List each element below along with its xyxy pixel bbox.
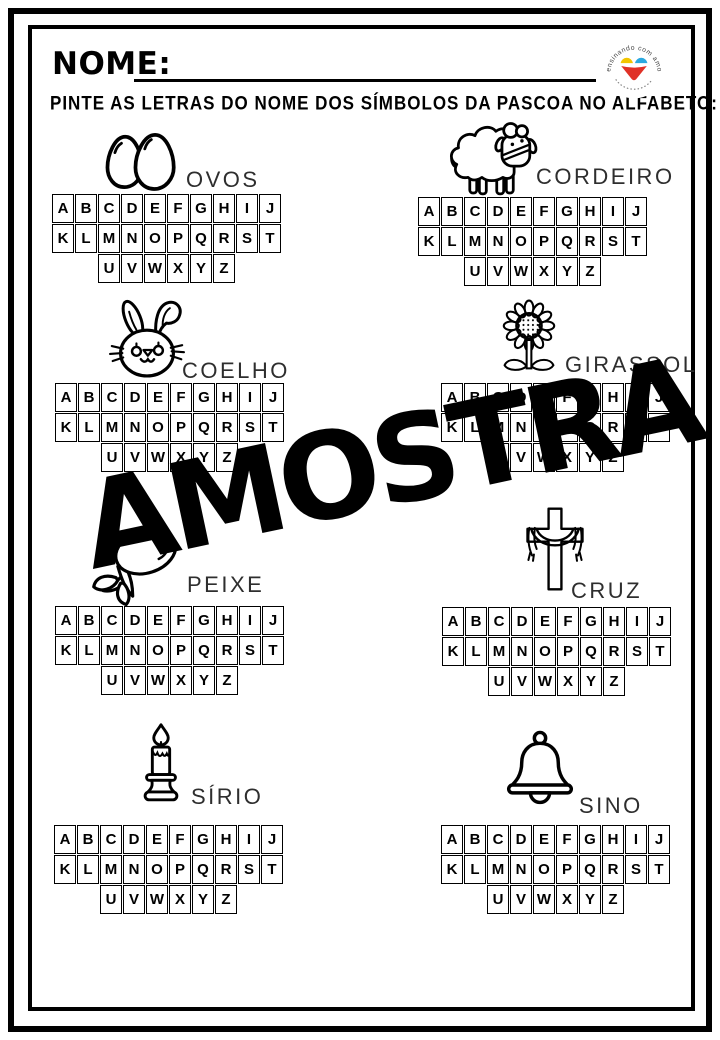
letter-cell-E[interactable]: E <box>534 607 556 636</box>
letter-cell-L[interactable]: L <box>465 637 487 666</box>
letter-cell-M[interactable]: M <box>101 413 123 442</box>
letter-cell-N[interactable]: N <box>124 636 146 665</box>
letter-cell-A[interactable]: A <box>418 197 440 226</box>
letter-cell-C[interactable]: C <box>464 197 486 226</box>
letter-cell-Q[interactable]: Q <box>556 227 578 256</box>
letter-cell-I[interactable]: I <box>625 825 647 854</box>
letter-cell-H[interactable]: H <box>602 825 624 854</box>
letter-cell-U[interactable]: U <box>98 254 120 283</box>
letter-cell-B[interactable]: B <box>75 194 97 223</box>
letter-cell-M[interactable]: M <box>100 855 122 884</box>
letter-cell-V[interactable]: V <box>123 885 145 914</box>
letter-cell-X[interactable]: X <box>169 885 191 914</box>
letter-cell-D[interactable]: D <box>124 383 146 412</box>
letter-cell-R[interactable]: R <box>579 227 601 256</box>
alphabet-row: ABCDEFGHIJ <box>55 383 284 412</box>
letter-cell-V[interactable]: V <box>124 666 146 695</box>
letter-cell-F[interactable]: F <box>167 194 189 223</box>
letter-cell-J[interactable]: J <box>261 825 283 854</box>
letter-cell-Q[interactable]: Q <box>190 224 212 253</box>
letter-cell-Y[interactable]: Y <box>193 666 215 695</box>
letter-cell-E[interactable]: E <box>146 825 168 854</box>
letter-cell-H[interactable]: H <box>603 607 625 636</box>
letter-cell-V[interactable]: V <box>511 667 533 696</box>
letter-cell-K[interactable]: K <box>54 855 76 884</box>
letter-cell-S[interactable]: S <box>602 227 624 256</box>
letter-cell-X[interactable]: X <box>167 254 189 283</box>
letter-cell-J[interactable]: J <box>648 825 670 854</box>
letter-cell-U[interactable]: U <box>100 885 122 914</box>
letter-cell-N[interactable]: N <box>124 413 146 442</box>
letter-cell-I[interactable]: I <box>236 194 258 223</box>
letter-cell-Q[interactable]: Q <box>580 637 602 666</box>
letter-cell-H[interactable]: H <box>213 194 235 223</box>
letter-cell-R[interactable]: R <box>213 224 235 253</box>
letter-cell-O[interactable]: O <box>147 636 169 665</box>
letter-cell-A[interactable]: A <box>54 825 76 854</box>
letter-cell-L[interactable]: L <box>78 636 100 665</box>
letter-cell-B[interactable]: B <box>78 606 100 635</box>
letter-cell-F[interactable]: F <box>169 825 191 854</box>
letter-cell-O[interactable]: O <box>144 224 166 253</box>
alphabet-row: ABCDEFGHIJ <box>441 825 670 854</box>
letter-cell-P[interactable]: P <box>533 227 555 256</box>
letter-cell-Y[interactable]: Y <box>190 254 212 283</box>
letter-cell-J[interactable]: J <box>259 194 281 223</box>
letter-cell-W[interactable]: W <box>533 885 555 914</box>
letter-cell-B[interactable]: B <box>77 825 99 854</box>
letter-cell-G[interactable]: G <box>193 606 215 635</box>
letter-cell-G[interactable]: G <box>193 383 215 412</box>
alphabet-row: ABCDEFGHIJ <box>55 606 284 635</box>
letter-cell-N[interactable]: N <box>487 227 509 256</box>
letter-cell-E[interactable]: E <box>147 606 169 635</box>
letter-cell-J[interactable]: J <box>262 383 284 412</box>
letter-cell-N[interactable]: N <box>121 224 143 253</box>
alphabet-row: KLMNOPQRST <box>52 224 281 253</box>
letter-cell-C[interactable]: C <box>101 606 123 635</box>
letter-cell-G[interactable]: G <box>579 825 601 854</box>
letter-cell-A[interactable]: A <box>52 194 74 223</box>
letter-cell-Y[interactable]: Y <box>580 667 602 696</box>
alphabet-row: KLMNOPQRST <box>441 855 670 884</box>
alphabet-row: ABCDEFGHIJ <box>52 194 281 223</box>
letter-cell-N[interactable]: N <box>123 855 145 884</box>
letter-cell-S[interactable]: S <box>239 636 261 665</box>
letter-cell-K[interactable]: K <box>418 227 440 256</box>
letter-cell-P[interactable]: P <box>167 224 189 253</box>
letter-cell-F[interactable]: F <box>170 383 192 412</box>
letter-cell-Q[interactable]: Q <box>579 855 601 884</box>
letter-cell-R[interactable]: R <box>602 855 624 884</box>
letter-cell-T[interactable]: T <box>262 636 284 665</box>
letter-cell-E[interactable]: E <box>147 383 169 412</box>
letter-cell-P[interactable]: P <box>169 855 191 884</box>
letter-cell-A[interactable]: A <box>441 825 463 854</box>
letter-cell-A[interactable]: A <box>442 607 464 636</box>
alphabet-row: KLMNOPQRST <box>54 855 283 884</box>
letter-cell-W[interactable]: W <box>144 254 166 283</box>
letter-cell-D[interactable]: D <box>121 194 143 223</box>
letter-cell-U[interactable]: U <box>101 666 123 695</box>
letter-cell-A[interactable]: A <box>55 383 77 412</box>
letter-cell-O[interactable]: O <box>534 637 556 666</box>
letter-cell-D[interactable]: D <box>487 197 509 226</box>
letter-cell-N[interactable]: N <box>510 855 532 884</box>
letter-cell-P[interactable]: P <box>556 855 578 884</box>
letter-cell-R[interactable]: R <box>603 637 625 666</box>
letter-cell-D[interactable]: D <box>124 606 146 635</box>
letter-cell-N[interactable]: N <box>511 637 533 666</box>
letter-cell-X[interactable]: X <box>557 667 579 696</box>
alphabet-row: KLMNOPQRST <box>418 227 647 256</box>
letter-cell-S[interactable]: S <box>238 855 260 884</box>
letter-cell-J[interactable]: J <box>649 607 671 636</box>
letter-cell-O[interactable]: O <box>510 227 532 256</box>
letter-cell-X[interactable]: X <box>533 257 555 286</box>
letter-cell-M[interactable]: M <box>487 855 509 884</box>
letter-cell-W[interactable]: W <box>534 667 556 696</box>
letter-cell-F[interactable]: F <box>170 606 192 635</box>
letter-cell-P[interactable]: P <box>170 636 192 665</box>
letter-cell-M[interactable]: M <box>464 227 486 256</box>
letter-cell-J[interactable]: J <box>262 606 284 635</box>
letter-cell-M[interactable]: M <box>98 224 120 253</box>
letter-cell-G[interactable]: G <box>580 607 602 636</box>
letter-cell-P[interactable]: P <box>557 637 579 666</box>
letter-cell-B[interactable]: B <box>464 825 486 854</box>
letter-cell-G[interactable]: G <box>192 825 214 854</box>
alphabet-row: ABCDEFGHIJ <box>418 197 647 226</box>
letter-cell-H[interactable]: H <box>579 197 601 226</box>
letter-cell-L[interactable]: L <box>464 855 486 884</box>
letter-cell-K[interactable]: K <box>441 855 463 884</box>
letter-cell-L[interactable]: L <box>75 224 97 253</box>
alphabet-row: KLMNOPQRST <box>55 636 284 665</box>
letter-cell-G[interactable]: G <box>556 197 578 226</box>
letter-cell-B[interactable]: B <box>465 607 487 636</box>
letter-cell-C[interactable]: C <box>100 825 122 854</box>
letter-cell-F[interactable]: F <box>556 825 578 854</box>
letter-cell-H[interactable]: H <box>215 825 237 854</box>
letter-cell-I[interactable]: I <box>602 197 624 226</box>
letter-cell-V[interactable]: V <box>121 254 143 283</box>
letter-cell-I[interactable]: I <box>626 607 648 636</box>
letter-cell-S[interactable]: S <box>625 855 647 884</box>
letter-cell-D[interactable]: D <box>123 825 145 854</box>
letter-cell-I[interactable]: I <box>239 383 261 412</box>
letter-cell-S[interactable]: S <box>626 637 648 666</box>
letter-cell-Z[interactable]: Z <box>216 666 238 695</box>
letter-cell-H[interactable]: H <box>216 606 238 635</box>
letter-cell-X[interactable]: X <box>556 885 578 914</box>
letter-cell-S[interactable]: S <box>236 224 258 253</box>
instruction-text: PINTE AS LETRAS DO NOME DOS SÍMBOLOS DA … <box>50 92 718 115</box>
letter-cell-T[interactable]: T <box>625 227 647 256</box>
letter-cell-G[interactable]: G <box>190 194 212 223</box>
letter-cell-W[interactable]: W <box>146 885 168 914</box>
letter-cell-C[interactable]: C <box>488 607 510 636</box>
letter-cell-L[interactable]: L <box>441 227 463 256</box>
letter-cell-B[interactable]: B <box>441 197 463 226</box>
letter-cell-X[interactable]: X <box>170 666 192 695</box>
letter-cell-T[interactable]: T <box>648 855 670 884</box>
letter-cell-R[interactable]: R <box>215 855 237 884</box>
letter-cell-Z[interactable]: Z <box>215 885 237 914</box>
letter-cell-Z[interactable]: Z <box>579 257 601 286</box>
letter-cell-D[interactable]: D <box>511 607 533 636</box>
letter-cell-T[interactable]: T <box>261 855 283 884</box>
letter-cell-C[interactable]: C <box>487 825 509 854</box>
letter-cell-T[interactable]: T <box>259 224 281 253</box>
letter-cell-Z[interactable]: Z <box>603 667 625 696</box>
letter-cell-E[interactable]: E <box>144 194 166 223</box>
letter-cell-I[interactable]: I <box>239 606 261 635</box>
letter-cell-K[interactable]: K <box>55 413 77 442</box>
letter-cell-O[interactable]: O <box>147 413 169 442</box>
letter-cell-W[interactable]: W <box>510 257 532 286</box>
letter-cell-J[interactable]: J <box>625 197 647 226</box>
letter-cell-L[interactable]: L <box>77 855 99 884</box>
alphabet-row: ABCDEFGHIJ <box>54 825 283 854</box>
letter-cell-H[interactable]: H <box>216 383 238 412</box>
letter-cell-M[interactable]: M <box>101 636 123 665</box>
letter-cell-F[interactable]: F <box>533 197 555 226</box>
alphabet-row: ABCDEFGHIJ <box>442 607 671 636</box>
letter-cell-T[interactable]: T <box>649 637 671 666</box>
letter-cell-Z[interactable]: Z <box>213 254 235 283</box>
alphabet-row: KLMNOPQRST <box>442 637 671 666</box>
letter-cell-O[interactable]: O <box>533 855 555 884</box>
letter-cell-Y[interactable]: Y <box>192 885 214 914</box>
letter-cell-I[interactable]: I <box>238 825 260 854</box>
letter-cell-E[interactable]: E <box>533 825 555 854</box>
letter-cell-O[interactable]: O <box>146 855 168 884</box>
letter-cell-F[interactable]: F <box>557 607 579 636</box>
letter-cell-B[interactable]: B <box>78 383 100 412</box>
letter-cell-D[interactable]: D <box>510 825 532 854</box>
name-line[interactable] <box>134 50 596 82</box>
letter-cell-U[interactable]: U <box>487 885 509 914</box>
letter-cell-C[interactable]: C <box>101 383 123 412</box>
letter-cell-Q[interactable]: Q <box>192 855 214 884</box>
letter-cell-V[interactable]: V <box>510 885 532 914</box>
letter-cell-K[interactable]: K <box>52 224 74 253</box>
letter-cell-U[interactable]: U <box>488 667 510 696</box>
letter-cell-Y[interactable]: Y <box>579 885 601 914</box>
letter-cell-M[interactable]: M <box>488 637 510 666</box>
letter-cell-K[interactable]: K <box>442 637 464 666</box>
letter-cell-E[interactable]: E <box>510 197 532 226</box>
letter-cell-V[interactable]: V <box>487 257 509 286</box>
letter-cell-A[interactable]: A <box>55 606 77 635</box>
letter-cell-W[interactable]: W <box>147 666 169 695</box>
letter-cell-Y[interactable]: Y <box>556 257 578 286</box>
letter-cell-Z[interactable]: Z <box>602 885 624 914</box>
letter-cell-Q[interactable]: Q <box>193 636 215 665</box>
letter-cell-K[interactable]: K <box>55 636 77 665</box>
letter-cell-R[interactable]: R <box>216 636 238 665</box>
letter-cell-U[interactable]: U <box>464 257 486 286</box>
letter-cell-C[interactable]: C <box>98 194 120 223</box>
letter-cell-L[interactable]: L <box>78 413 100 442</box>
